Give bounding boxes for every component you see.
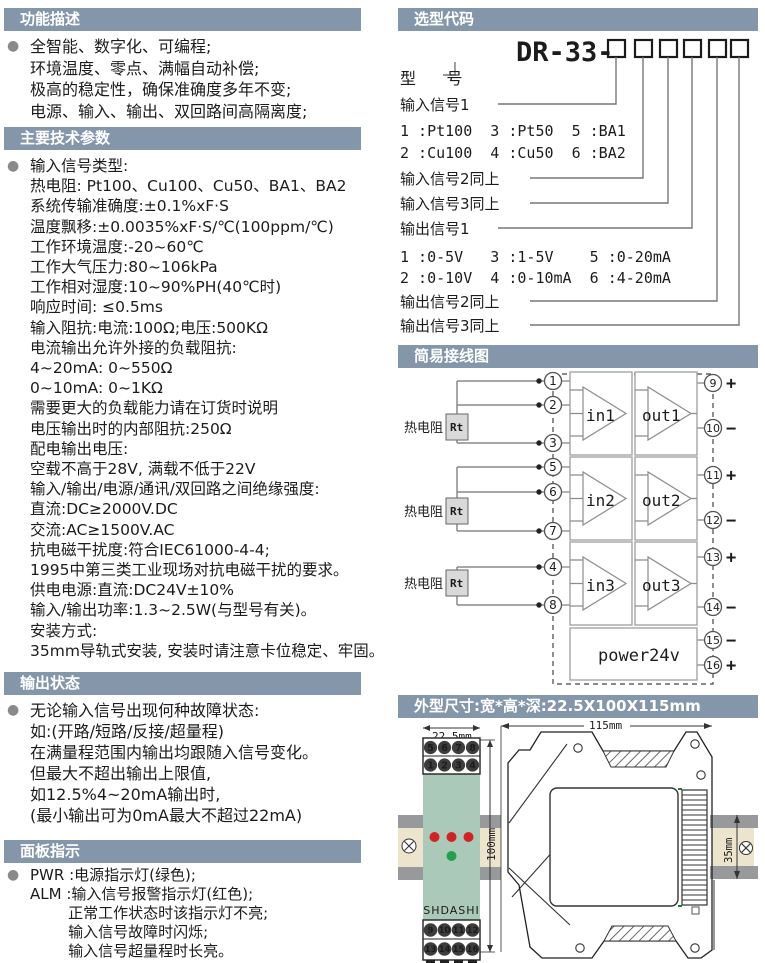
row-input-options-2: 2 :Cu100 4 :Cu50 6 :BA2 (400, 144, 626, 162)
svg-text:9: 9 (428, 926, 434, 936)
svg-text:15: 15 (453, 945, 465, 955)
spec-line: 需要更大的负载能力请在订货时说明 (30, 398, 390, 418)
spec-line: 响应时间: ≤0.5ms (30, 297, 390, 317)
section-header-output-state: 输出状态 (4, 672, 361, 695)
row-input3: 输入信号3同上 (400, 195, 500, 213)
svg-text:7: 7 (455, 743, 462, 754)
spec-line: ●全智能、数字化、可编程; (30, 36, 390, 58)
spec-line: 温度飘移:±0.0035%xF·S/℃(100ppm/℃) (30, 217, 390, 237)
features-list: ●全智能、数字化、可编程;环境温度、零点、满幅自动补偿;极高的稳定性，确保准确度… (30, 36, 390, 122)
spec-line: 0~10mA: 0~1KΩ (30, 378, 390, 398)
alm-led-icon (447, 832, 457, 842)
wiring-diagram: in1 in2 in3 out1 out2 out3 power24v Rt R… (398, 370, 765, 692)
spec-line: 正常工作状态时该指示灯不亮; (30, 904, 390, 923)
svg-text:10: 10 (706, 422, 720, 435)
brand-label: SHDASHI (423, 904, 480, 917)
svg-text:11: 11 (706, 469, 720, 482)
svg-text:−: − (726, 511, 736, 531)
svg-text:1: 1 (427, 761, 434, 772)
panel-leds-list: ●PWR :电源指示灯(绿色);ALM :输入信号报警指示灯(红色); 正常工作… (30, 866, 390, 961)
connector-ribs (678, 789, 707, 906)
section-header-features: 功能描述 (4, 8, 361, 31)
row-input-options-1: 1 :Pt100 3 :Pt50 5 :BA1 (400, 122, 626, 140)
spec-line: 输入/输出/电源/通讯/双回路之间绝缘强度: (30, 479, 390, 499)
spec-line: (最小输出可为0mA最大不超过22mA) (30, 805, 390, 826)
spec-line: 35mm导轨式安装, 安装时请注意卡位稳定、牢固。 (30, 641, 390, 661)
row-output3: 输出信号3同上 (400, 317, 500, 335)
svg-text:6: 6 (549, 485, 557, 499)
row-model: 型 号 (400, 69, 463, 88)
svg-text:1: 1 (549, 374, 557, 388)
amp-out2-label: out2 (642, 491, 681, 510)
datasheet-page: 功能描述 ●全智能、数字化、可编程;环境温度、零点、满幅自动补偿;极高的稳定性，… (0, 0, 765, 963)
svg-text:3: 3 (549, 436, 557, 450)
rail-label: 35mm (723, 838, 735, 863)
row-output2: 输出信号2同上 (400, 293, 500, 311)
alm-led-icon (464, 832, 474, 842)
amp-in1-label: in1 (586, 406, 615, 425)
spec-line: 如:(开路/短路/反接/超量程) (30, 721, 390, 742)
spec-line: 4~20mA: 0~550Ω (30, 358, 390, 378)
output-state-list: ●无论输入信号出现何种故障状态:如:(开路/短路/反接/超量程)在满量程范围内输… (30, 700, 390, 826)
rt2-label: Rt (450, 505, 463, 518)
code-boxes (608, 40, 748, 57)
svg-text:8: 8 (469, 743, 476, 754)
bullet-icon: ● (7, 36, 19, 58)
bullet-icon: ● (7, 866, 19, 885)
spec-line: 空载不高于28V, 满载不低于22V (30, 459, 390, 479)
spec-line: 系统传输准确度:±0.1%xF·S (30, 196, 390, 216)
spec-line: ●PWR :电源指示灯(绿色); (30, 866, 390, 885)
svg-text:+: + (726, 466, 736, 486)
section-header-panel-leds: 面板指示 (4, 840, 361, 863)
label-plate (550, 788, 678, 906)
svg-text:13: 13 (425, 945, 437, 955)
spec-line: 电压输出时的内部阻抗:250Ω (30, 419, 390, 439)
svg-text:13: 13 (706, 551, 720, 564)
svg-text:15: 15 (706, 634, 720, 647)
svg-text:6: 6 (441, 743, 448, 754)
svg-text:−: − (726, 419, 736, 439)
svg-text:10: 10 (439, 926, 451, 936)
svg-text:12: 12 (467, 926, 479, 936)
specs-list: ●输入信号类型:热电阻: Pt100、Cu100、Cu50、BA1、BA2系统传… (30, 156, 390, 661)
left-terminals: 1 2 3 5 6 7 4 8 (545, 373, 562, 614)
spec-line: 但最大不超出输出上限值, (30, 763, 390, 784)
spec-line: 输入信号超量程时长亮。 (30, 942, 390, 961)
height-label: 100mm (485, 828, 498, 861)
spec-line: 工作环境温度:-20~60℃ (30, 237, 390, 257)
rail-screw-icon (402, 839, 416, 853)
bullet-icon: ● (7, 156, 19, 176)
bullet-icon: ● (7, 700, 19, 721)
rt3-label: Rt (450, 577, 463, 590)
model-code: DR-33- (516, 37, 614, 68)
section-header-dimensions: 外型尺寸:宽*高*深:22.5X100X115mm (398, 695, 758, 718)
power-label: power24v (598, 646, 680, 666)
spec-line: 1995中第三类工业现场对抗电磁干扰的要求。 (30, 560, 390, 580)
spec-line: 热电阻: Pt100、Cu100、Cu50、BA1、BA2 (30, 176, 390, 196)
row-input1: 输入信号1 (400, 96, 470, 114)
polarity-signs: + − + − + − − + (726, 374, 736, 676)
rtd1-label: 热电阻 (404, 421, 443, 436)
amp-in3-label: in3 (586, 576, 615, 595)
spec-line: 直流:DC≥2000V.DC (30, 499, 390, 519)
spec-line: 电流输出允许外接的负载阻抗: (30, 338, 390, 358)
front-view: 22.5mm 56 78 12 34 (398, 725, 501, 963)
row-output1: 输出信号1 (400, 220, 470, 238)
selection-code-diagram: DR-33- 型 号 输入信号1 1 :Pt100 3 :Pt50 5 :BA1… (398, 36, 762, 338)
row-output-options-1: 1 :0-5V 3 :1-5V 5 :0-20mA (400, 248, 671, 266)
spec-line: ●无论输入信号出现何种故障状态: (30, 700, 390, 721)
svg-text:9: 9 (710, 377, 717, 390)
spec-line: 供电电源:直流:DC24V±10% (30, 580, 390, 600)
right-terminals: 9 10 11 12 13 14 15 16 + − + − + − − + (705, 374, 737, 676)
svg-text:2: 2 (441, 761, 448, 772)
rtd3-label: 热电阻 (404, 577, 443, 592)
amp-out3-label: out3 (642, 576, 681, 595)
spec-line: 工作大气压力:80~106kPa (30, 257, 390, 277)
row-input2: 输入信号2同上 (400, 170, 500, 188)
dimensions-drawing: 22.5mm 56 78 12 34 (396, 718, 765, 963)
svg-text:7: 7 (549, 524, 557, 538)
spec-line: 工作相对湿度:10~90%PH(40℃时) (30, 277, 390, 297)
spec-line: 安装方式: (30, 621, 390, 641)
spec-line: 交流:AC≥1500V.AC (30, 520, 390, 540)
spec-line: 输入信号故障时闪烁; (30, 923, 390, 942)
svg-text:5: 5 (427, 743, 434, 754)
spec-line: 如12.5%4~20mA输出时, (30, 784, 390, 805)
rtd2-label: 热电阻 (404, 505, 443, 520)
section-header-wiring: 简易接线图 (398, 345, 758, 368)
section-header-selection-code: 选型代码 (398, 8, 758, 31)
svg-text:8: 8 (549, 598, 557, 612)
svg-text:−: − (726, 598, 736, 618)
section-header-specs: 主要技术参数 (4, 127, 361, 150)
bottom-terminal-block: 910 1112 1314 1516 (423, 920, 480, 963)
spec-line: 配电输出电压: (30, 439, 390, 459)
clip-detail (692, 907, 699, 914)
rail-screw-icon (740, 842, 753, 855)
rt1-label: Rt (450, 421, 463, 434)
spec-line: ●输入信号类型: (30, 156, 390, 176)
spec-line: ALM :输入信号报警指示灯(红色); (30, 885, 390, 904)
side-view: 115mm (501, 718, 758, 958)
svg-text:4: 4 (549, 560, 557, 574)
svg-text:16: 16 (467, 945, 479, 955)
amp-out1-label: out1 (642, 406, 681, 425)
wire-junction-dots (536, 378, 541, 607)
svg-text:2: 2 (549, 398, 557, 412)
alm-led-icon (430, 832, 440, 842)
svg-text:12: 12 (706, 514, 720, 527)
vent-hatch-top (603, 751, 674, 767)
amp-in2-label: in2 (586, 491, 615, 510)
top-terminal-block: 56 78 12 34 (423, 738, 480, 774)
device-body (423, 774, 480, 920)
row-output-options-2: 2 :0-10V 4 :0-10mA 6 :4-20mA (400, 269, 671, 287)
svg-text:4: 4 (469, 761, 476, 772)
svg-text:+: + (726, 548, 736, 568)
svg-text:16: 16 (706, 659, 720, 672)
svg-text:3: 3 (455, 761, 462, 772)
svg-text:14: 14 (706, 601, 720, 614)
spec-line: 输入阻抗:电流:100Ω;电压:500KΩ (30, 318, 390, 338)
svg-text:14: 14 (439, 945, 451, 955)
svg-text:+: + (726, 374, 736, 394)
depth-label: 115mm (589, 719, 622, 732)
svg-text:5: 5 (549, 460, 557, 474)
spec-line: 抗电磁干扰度:符合IEC61000-4-4; (30, 540, 390, 560)
spec-line: 输入/输出功率:1.3~2.5W(与型号有关)。 (30, 600, 390, 620)
pwr-led-icon (447, 851, 457, 861)
svg-text:+: + (726, 656, 736, 676)
rtd-sensors: Rt Rt Rt 热电阻 热电阻 热电阻 (404, 414, 468, 596)
svg-text:11: 11 (453, 926, 465, 936)
spec-line: 极高的稳定性，确保准确度多年不变; (30, 79, 390, 101)
spec-line: 电源、输入、输出、双回路间高隔离度; (30, 101, 390, 123)
vent-hatch-bottom (604, 926, 676, 941)
spec-line: 环境温度、零点、满幅自动补偿; (30, 58, 390, 80)
spec-line: 在满量程范围内输出均跟随入信号变化。 (30, 742, 390, 763)
svg-text:−: − (726, 631, 736, 651)
